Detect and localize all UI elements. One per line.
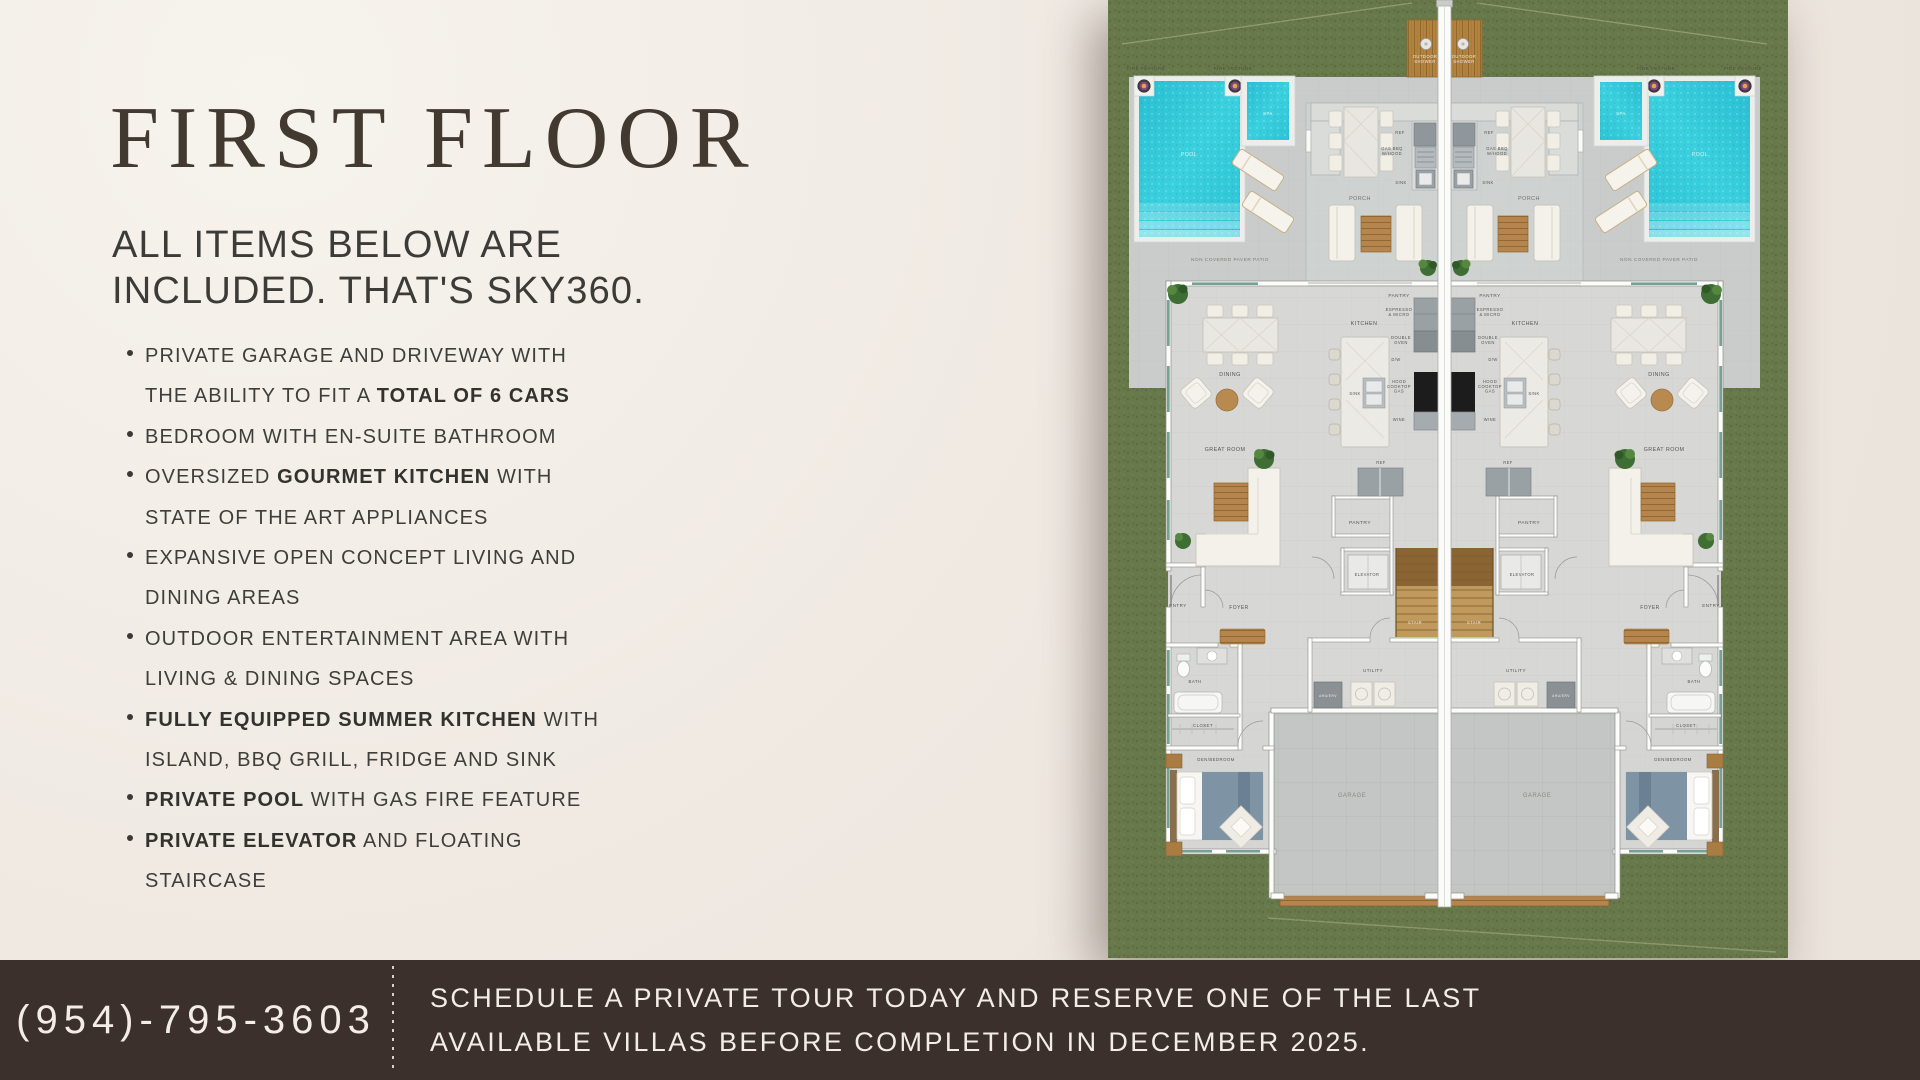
plan-room-label: REF [1503, 460, 1513, 465]
cta-line: AVAILABLE VILLAS BEFORE COMPLETION IN DE… [430, 1020, 1920, 1064]
plan-room-label: GARAGE [1338, 793, 1366, 799]
plan-room-label: PANTRY [1388, 293, 1410, 298]
plan-room-label: UTILITY [1363, 668, 1383, 673]
plan-room-label: UTILITY [1506, 668, 1526, 673]
plan-room-label: DINING [1219, 372, 1241, 378]
feature-item: PRIVATE POOL WITH GAS FIRE FEATURE [127, 780, 647, 820]
plan-room-label: GREAT ROOM [1205, 447, 1246, 453]
plan-room-label: REF [1484, 130, 1494, 135]
plan-room-label: FOYER [1640, 605, 1659, 611]
plan-room-label: DEN/BEDROOM [1197, 757, 1234, 762]
cta-text: SCHEDULE A PRIVATE TOUR TODAY AND RESERV… [394, 960, 1920, 1080]
feature-item: EXPANSIVE OPEN CONCEPT LIVING ANDDINING … [127, 538, 647, 619]
subtitle-line: ALL ITEMS BELOW ARE [112, 222, 645, 268]
feature-item: OUTDOOR ENTERTAINMENT AREA WITHLIVING & … [127, 619, 647, 700]
subtitle-line: INCLUDED. THAT'S SKY360. [112, 268, 645, 314]
plan-room-label: STAIR [1467, 620, 1481, 625]
plan-room-label: D/W [1488, 357, 1497, 362]
plan-room-label: OUTDOORSHOWER [1452, 54, 1477, 64]
plan-room-label: BATH [1189, 679, 1202, 684]
plan-room-label: FIRE FEATURE [1127, 66, 1165, 71]
feature-item: PRIVATE GARAGE AND DRIVEWAY WITHTHE ABIL… [127, 336, 647, 417]
feature-item: BEDROOM WITH EN-SUITE BATHROOM [127, 417, 647, 457]
bullet-icon [127, 350, 133, 356]
floorplan-image: FIRE FEATUREFIRE FEATUREFIRE FEATUREFIRE… [1108, 0, 1788, 958]
nightstand [1166, 842, 1182, 856]
plan-room-label: GREAT ROOM [1644, 447, 1685, 453]
plan-room-label: PORCH [1349, 196, 1371, 202]
plan-room-label: SINK [1482, 180, 1493, 185]
plan-room-label: PORCH [1518, 196, 1540, 202]
bullet-icon [127, 794, 133, 800]
plan-room-label: KITCHEN [1351, 321, 1378, 327]
plan-room-label: FIRE FEATURE [1724, 66, 1762, 71]
phone-number: (954)-795-3603 [0, 960, 392, 1080]
plan-room-label: ESPRESSO& MICRO [1477, 307, 1504, 317]
bullet-icon [127, 835, 133, 841]
plan-room-label: ENTRY [1702, 603, 1719, 608]
plan-room-label: BATH [1688, 679, 1701, 684]
nightstand [1166, 754, 1182, 768]
plan-room-label: REF [1376, 460, 1386, 465]
plan-room-label: SPA [1616, 111, 1626, 116]
plan-room-label: POOL [1181, 152, 1197, 158]
dining-set [1203, 305, 1278, 365]
bullet-icon [127, 633, 133, 639]
plan-room-label: NON COVERED PAVER PATIO [1191, 257, 1269, 263]
bullet-icon [127, 714, 133, 720]
info-panel: FIRST FLOOR ALL ITEMS BELOW AREINCLUDED.… [0, 0, 1100, 958]
plan-room-label: KITCHEN [1512, 321, 1539, 327]
subtitle: ALL ITEMS BELOW AREINCLUDED. THAT'S SKY3… [112, 222, 645, 314]
plan-room-label: PANTRY [1479, 293, 1501, 298]
plan-room-label: PANTRY [1518, 520, 1540, 526]
party-wall [1437, 0, 1453, 907]
plan-room-label: POOL [1692, 152, 1708, 158]
plan-room-label: AHU/ERV [1319, 694, 1337, 698]
bullet-icon [127, 552, 133, 558]
plan-room-label: FOYER [1229, 605, 1248, 611]
plan-room-label: NON COVERED PAVER PATIO [1620, 257, 1698, 263]
plan-room-label: GAS BBQW/HOOD [1486, 146, 1508, 156]
plan-room-label: WINE [1393, 417, 1406, 422]
plan-room-label: STAIR [1408, 620, 1422, 625]
footer-bar: (954)-795-3603 SCHEDULE A PRIVATE TOUR T… [0, 960, 1920, 1080]
plan-room-label: SINK [1395, 180, 1406, 185]
plan-room-label: FIRE FEATURE [1214, 66, 1252, 71]
bullet-icon [127, 471, 133, 477]
plan-room-label: AHU/ERV [1552, 694, 1570, 698]
plan-room-label: ELEVATOR [1510, 572, 1535, 577]
plan-room-label: SINK [1349, 391, 1360, 396]
bullet-icon [127, 431, 133, 437]
plan-room-label: FIRE FEATURE [1637, 66, 1675, 71]
plan-room-label: DINING [1648, 372, 1670, 378]
cta-line: SCHEDULE A PRIVATE TOUR TODAY AND RESERV… [430, 976, 1920, 1020]
plan-room-label: SPA [1263, 111, 1273, 116]
feature-item: PRIVATE ELEVATOR AND FLOATINGSTAIRCASE [127, 821, 647, 902]
plan-room-label: SINK [1528, 391, 1539, 396]
dryer [1374, 682, 1395, 706]
plan-room-label: OUTDOORSHOWER [1413, 54, 1438, 64]
plan-room-label: CLOSET [1193, 723, 1213, 728]
plan-room-label: ELEVATOR [1355, 572, 1380, 577]
villa-unit [1122, 3, 1445, 906]
plan-room-label: CLOSET [1676, 723, 1696, 728]
fire-feature [1134, 76, 1154, 96]
plan-room-label: REF [1395, 130, 1405, 135]
feature-item: OVERSIZED GOURMET KITCHEN WITHSTATE OF T… [127, 457, 647, 538]
plan-room-label: GARAGE [1523, 793, 1551, 799]
plan-room-label: ESPRESSO& MICRO [1386, 307, 1413, 317]
plan-room-label: D/W [1391, 357, 1400, 362]
page-title: FIRST FLOOR [110, 88, 758, 189]
plan-room-label: DEN/BEDROOM [1654, 757, 1691, 762]
plan-room-label: GAS BBQW/HOOD [1381, 146, 1403, 156]
flyer-page: { "page": { "background": "#efe9e2", "ac… [0, 0, 1920, 1080]
plan-room-label: PANTRY [1349, 520, 1371, 526]
plant [1175, 533, 1191, 549]
plan-room-label: ENTRY [1169, 603, 1186, 608]
feature-item: FULLY EQUIPPED SUMMER KITCHEN WITHISLAND… [127, 700, 647, 781]
bench [1220, 629, 1265, 644]
plan-room-label: WINE [1484, 417, 1497, 422]
feature-list: PRIVATE GARAGE AND DRIVEWAY WITHTHE ABIL… [127, 336, 647, 901]
washer [1351, 682, 1372, 706]
